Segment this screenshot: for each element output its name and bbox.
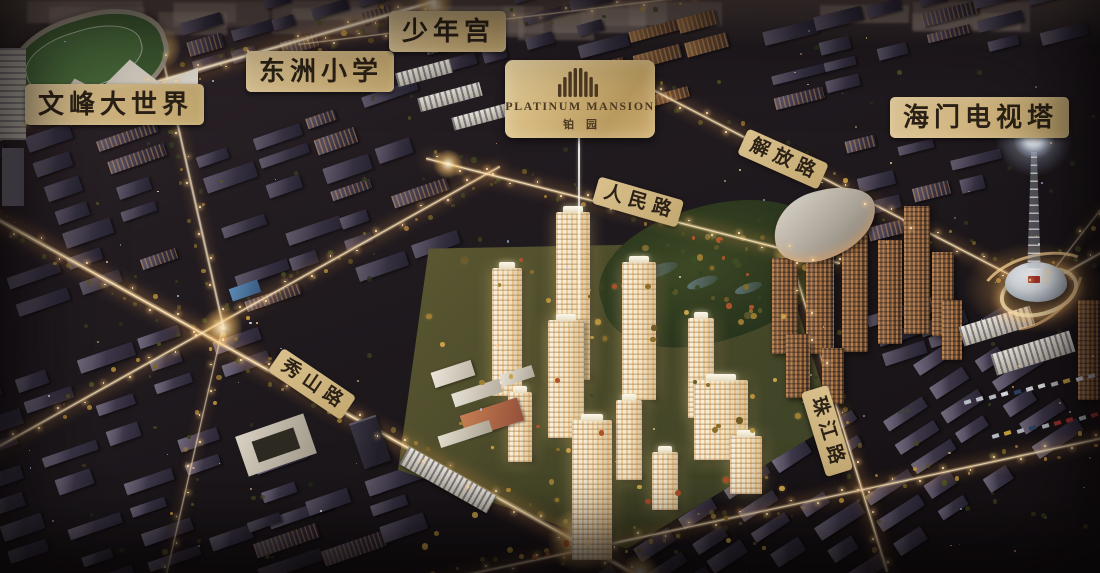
street-light (177, 313, 179, 315)
tower-crown (513, 386, 526, 393)
park-tree (744, 312, 751, 319)
roadside-tree (493, 557, 498, 562)
landscape-tree (546, 553, 550, 557)
intersection-flare (620, 553, 660, 573)
roadside-tree (847, 474, 851, 478)
landscape-tree (426, 314, 431, 319)
landscape-tree (595, 319, 600, 324)
roadside-tree (556, 198, 560, 202)
city-tree (96, 202, 99, 205)
landmark-label-haimen-tv-tower: 海门电视塔 (890, 97, 1069, 138)
residential-tower (572, 420, 612, 560)
landscape-tree (795, 413, 801, 419)
street-light (222, 308, 224, 310)
landscape-tree (645, 284, 651, 290)
city-tree (814, 45, 819, 50)
roadside-tree (711, 219, 716, 224)
building-block (310, 0, 349, 20)
roadside-tree (846, 421, 849, 424)
building-block (857, 170, 896, 192)
roadside-tree (268, 357, 272, 361)
building-block (44, 176, 83, 202)
roadside-tree (745, 247, 749, 251)
roadside-tree (218, 54, 222, 58)
building-block (148, 545, 202, 572)
building-block (14, 369, 49, 393)
sparkle (948, 452, 950, 454)
building-block (130, 497, 167, 518)
sparkle (198, 545, 200, 547)
building-block (115, 176, 152, 200)
building-block (684, 32, 729, 57)
city-tree (722, 525, 727, 530)
landscape-tree (536, 425, 540, 429)
sparkle (1069, 411, 1071, 413)
park-tree (743, 284, 749, 290)
building-block (107, 143, 167, 174)
amber-tower (786, 334, 810, 398)
landscape-tree (507, 547, 513, 553)
street-light (1079, 230, 1081, 232)
building-block (987, 35, 1019, 52)
street-light (868, 491, 870, 493)
landscape-tree (736, 417, 742, 423)
sparkle (679, 276, 681, 278)
sparkle (890, 162, 892, 164)
building-block (525, 31, 556, 50)
roadside-tree (525, 22, 528, 25)
white-tower (0, 48, 26, 140)
street-light (333, 42, 335, 44)
roadside-tree (1078, 431, 1082, 435)
landscape-tree (711, 514, 716, 519)
street-light (239, 306, 241, 308)
roadside-tree (510, 8, 514, 12)
city-tree (815, 376, 818, 379)
landscape-tree (726, 538, 731, 543)
park-tree (668, 287, 673, 292)
building-block (81, 548, 114, 567)
building-block (339, 209, 369, 230)
building-block (305, 488, 351, 516)
building-block (96, 393, 136, 416)
building-block (959, 174, 986, 194)
city-tree (1041, 513, 1046, 518)
residential-tower (652, 452, 678, 510)
sparkle (249, 322, 251, 324)
building-block (892, 526, 927, 556)
building-block (314, 127, 358, 156)
city-tree (563, 147, 567, 151)
city-tree (410, 95, 413, 98)
landscape-tree (603, 336, 607, 340)
building-block (140, 517, 194, 547)
sparkle (1059, 402, 1060, 403)
roadside-tree (522, 169, 526, 173)
building-block (929, 367, 970, 400)
city-tree (422, 178, 425, 181)
city-tree (367, 353, 372, 358)
street-light (513, 511, 515, 513)
landscape-tree (637, 485, 642, 490)
sparkle (1089, 457, 1091, 459)
residential-tower (730, 436, 762, 494)
street-light (864, 203, 866, 205)
road-label-renmin: 人民路 (592, 176, 684, 227)
roadside-tree (205, 282, 209, 286)
building-block (42, 439, 99, 468)
tower-crown (658, 446, 673, 453)
roadside-tree (428, 215, 433, 220)
sparkle (724, 180, 726, 182)
gray-tower (2, 148, 24, 206)
sparkle (842, 93, 843, 94)
arch-colonnade-icon (557, 67, 603, 97)
landscape-tree (724, 297, 729, 302)
city-tree (698, 120, 703, 125)
building-block (0, 492, 26, 516)
roadside-tree (363, 232, 366, 235)
street-light (38, 427, 40, 429)
roadside-tree (331, 45, 335, 49)
building-block (16, 287, 71, 317)
roadside-tree (191, 503, 194, 506)
sparkle (763, 199, 765, 201)
building-block (877, 42, 909, 61)
street-light (1044, 445, 1046, 447)
roadside-tree (328, 250, 333, 255)
roadside-tree (456, 567, 459, 570)
roadside-tree (843, 178, 848, 183)
amber-tower (904, 206, 930, 334)
tower-crown (694, 312, 709, 319)
road-label-jiefang: 解放路 (737, 128, 829, 189)
landscape-tree (509, 374, 513, 378)
roadside-tree (426, 447, 430, 451)
residential-tower (622, 262, 656, 400)
roadside-tree (494, 485, 497, 488)
street-light (839, 258, 841, 260)
street-light (199, 441, 201, 443)
sparkle (823, 326, 824, 327)
roadside-tree (480, 557, 485, 562)
building-block (262, 0, 292, 9)
roadside-tree (681, 232, 685, 236)
building-block (828, 535, 859, 562)
sparkle (794, 72, 795, 73)
landscape-tree (563, 540, 569, 546)
street-light (631, 566, 633, 568)
roadside-tree (414, 441, 417, 444)
roadside-tree (168, 130, 172, 134)
building-block (938, 495, 969, 520)
city-tree (260, 495, 264, 499)
roadside-tree (155, 319, 158, 322)
sparkle (1018, 365, 1020, 367)
project-name-en: PLATINUM MANSION (505, 99, 654, 114)
roadside-tree (170, 512, 173, 515)
roadside-tree (519, 554, 524, 559)
sparkle (1041, 182, 1043, 184)
street-light (872, 538, 874, 540)
landscape-tree (750, 394, 755, 399)
roadside-tree (882, 219, 885, 222)
roadside-tree (157, 342, 161, 346)
city-tree (991, 342, 995, 346)
sparkle (238, 382, 239, 383)
street-light (872, 511, 874, 513)
landscape-tree (549, 479, 554, 484)
landscape-tree (712, 427, 718, 433)
building-block (54, 202, 89, 225)
park-tree (738, 319, 744, 325)
building-block (818, 35, 851, 56)
sign-pointer-line (578, 137, 580, 319)
landscape-tree (555, 378, 560, 383)
landscape-tree (590, 336, 593, 339)
sparkle (855, 126, 857, 128)
street-light (766, 513, 768, 515)
roadside-tree (360, 29, 365, 34)
roadside-tree (111, 367, 116, 372)
roadside-tree (324, 269, 328, 273)
building-block (305, 109, 337, 129)
street-light (286, 385, 288, 387)
roadside-tree (674, 109, 678, 113)
street-light (586, 540, 588, 542)
landmark-label-dongzhou: 东洲小学 (246, 51, 394, 92)
sparkle (97, 341, 99, 343)
roadside-tree (202, 203, 205, 206)
sparkle (177, 295, 179, 297)
building-block (195, 147, 230, 168)
building-block (154, 373, 193, 395)
street-light (187, 465, 189, 467)
roadside-tree (640, 7, 645, 12)
street-light (509, 183, 511, 185)
street-light (198, 233, 200, 235)
landscape-tree (440, 342, 445, 347)
city-tree (265, 554, 270, 559)
building-block (950, 149, 1002, 171)
city-tree (914, 441, 919, 446)
roadside-tree (574, 183, 577, 186)
street-light (679, 107, 681, 109)
roadside-tree (176, 154, 181, 159)
sparkle (821, 182, 823, 184)
sparkle (496, 344, 498, 346)
street-light (165, 54, 167, 56)
tower-crown (622, 394, 637, 401)
street-light (311, 275, 313, 277)
landscape-tree (546, 298, 551, 303)
roadside-tree (544, 195, 547, 198)
street-light (587, 194, 589, 196)
landscape-tree (651, 325, 656, 330)
roadside-tree (833, 172, 836, 175)
street-light (956, 251, 958, 253)
street-light (537, 181, 539, 183)
sparkle (106, 261, 107, 262)
park-tree (711, 296, 715, 300)
roadside-tree (551, 22, 554, 25)
city-tree (367, 276, 372, 281)
roadside-tree (653, 7, 657, 11)
roadside-tree (153, 294, 158, 299)
city-tree (897, 70, 902, 75)
roadside-tree (313, 276, 316, 279)
building-block (120, 201, 158, 223)
city-tree (147, 142, 150, 145)
roadside-tree (162, 549, 167, 554)
street-light (459, 170, 461, 172)
street-light (149, 309, 151, 311)
landscape-tree (749, 309, 753, 313)
roadside-tree (391, 427, 396, 432)
street-light (993, 456, 995, 458)
landscape-tree (724, 516, 728, 520)
sparkle (1083, 487, 1085, 489)
building-block (24, 122, 73, 152)
sparkle (357, 380, 359, 382)
city-tree (786, 140, 791, 145)
sparkle (739, 169, 741, 171)
building-block (33, 151, 73, 177)
street-light (199, 206, 201, 208)
roadside-tree (348, 259, 353, 264)
building-block (576, 19, 605, 36)
roadside-tree (170, 525, 173, 528)
street-light (560, 195, 562, 197)
roadside-tree (631, 217, 636, 222)
roadside-tree (1015, 445, 1018, 448)
park-tree (726, 303, 731, 308)
landscape-tree (676, 534, 680, 538)
residential-tower (616, 400, 642, 480)
building-block (356, 0, 398, 7)
city-tree (250, 423, 253, 426)
roadside-tree (949, 230, 952, 233)
roadside-tree (697, 513, 700, 516)
street-light (175, 132, 177, 134)
street-light (715, 524, 717, 526)
sparkle (507, 240, 509, 242)
sparkle (1012, 386, 1013, 387)
tower-crown (499, 262, 516, 269)
city-tree (362, 177, 367, 182)
park-tree (758, 308, 763, 313)
street-light (643, 4, 645, 6)
city-tree (149, 375, 152, 378)
city-tree (490, 183, 493, 186)
roadside-tree (281, 388, 284, 391)
building-block (271, 14, 295, 30)
street-light (164, 566, 166, 568)
building-block (286, 215, 344, 245)
building-block (883, 396, 928, 432)
roadside-tree (194, 244, 197, 247)
landscape-tree (556, 448, 559, 451)
building-block (320, 530, 386, 566)
street-light (536, 554, 538, 556)
building-block (974, 0, 1023, 9)
landscape-tree (723, 477, 729, 483)
roadside-tree (216, 375, 221, 380)
street-light (711, 234, 713, 236)
street-light (512, 568, 514, 570)
street-light (841, 489, 843, 491)
tower-crown (706, 374, 736, 381)
city-tree (271, 556, 274, 559)
street-light (13, 233, 15, 235)
park-pond (686, 273, 720, 292)
roadside-tree (968, 472, 971, 475)
building-block (87, 565, 136, 573)
roadside-tree (42, 254, 46, 258)
building-block (977, 10, 1025, 33)
roadside-tree (472, 187, 475, 190)
landscape-tree (599, 430, 605, 436)
street-light (175, 80, 177, 82)
park-tree (697, 254, 703, 260)
park-tree (692, 236, 696, 240)
city-scene: 文峰大世界 东洲小学 少年宫 海门电视塔 人民路 解放路 秀山路 珠江路 PLA… (0, 0, 1100, 573)
roadside-tree (279, 294, 282, 297)
roadside-tree (87, 280, 92, 285)
street-light (857, 461, 859, 463)
street-light (268, 363, 270, 365)
street-light (910, 227, 912, 229)
building-block (845, 135, 877, 153)
sparkle (618, 462, 620, 464)
street-light (811, 312, 813, 314)
landscape-tree (472, 512, 477, 517)
building-block (230, 19, 275, 42)
city-tree (1031, 512, 1035, 516)
building-block (374, 137, 414, 164)
building-block (62, 218, 115, 249)
roadside-tree (123, 297, 126, 300)
landscape-tree (434, 531, 439, 536)
building-block (824, 55, 857, 72)
building-block (221, 213, 267, 238)
street-light (485, 565, 487, 567)
park-tree (739, 272, 743, 276)
building-block (246, 512, 282, 533)
sparkle (192, 467, 194, 469)
city-tree (153, 426, 156, 429)
landscape-tree (462, 258, 467, 263)
roadside-tree (1057, 456, 1061, 460)
landscape-tree (779, 486, 784, 491)
street-light (919, 480, 921, 482)
street-light (1044, 279, 1046, 281)
roadside-tree (644, 222, 648, 226)
building-block (54, 468, 94, 495)
street-light (725, 131, 727, 133)
building-block (982, 465, 1014, 494)
tower-crown (556, 314, 576, 321)
street-light (826, 362, 828, 364)
roadside-tree (196, 478, 199, 481)
sparkle (863, 415, 865, 417)
street-light (1047, 271, 1049, 273)
building-block (927, 24, 971, 44)
sparkle (30, 467, 31, 468)
building-block (512, 0, 550, 3)
park-tree (681, 249, 685, 253)
street-light (195, 334, 197, 336)
